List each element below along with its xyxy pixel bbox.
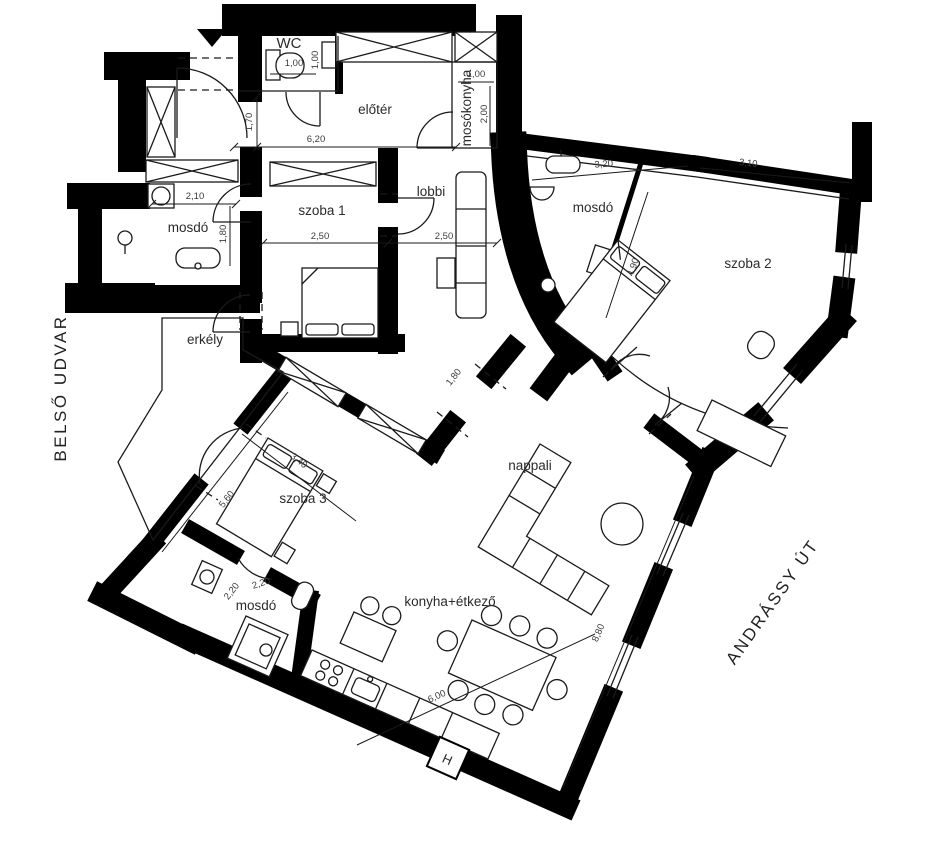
floorplan-page: H WC előtér mosókonyha mosdó szoba 1 lob…: [0, 0, 950, 860]
floorplan-drawing: H WC előtér mosókonyha mosdó szoba 1 lob…: [0, 0, 950, 860]
nappali-round-table: [601, 503, 643, 545]
room-label-konyha: konyha+étkező: [404, 594, 495, 609]
dim-wc-d: 1,00: [310, 51, 321, 70]
dim-eloter-d: 1,70: [244, 113, 255, 132]
dim-mosdo2-w: 3,20: [594, 158, 613, 171]
dim-nappali-e: 8,80: [590, 622, 607, 643]
dim-wc-w: 1,00: [285, 58, 304, 69]
dim-lobbi-opening: 1,80: [444, 367, 464, 388]
entrance-arrow-icon: [197, 29, 227, 47]
room-label-szoba1: szoba 1: [298, 203, 345, 218]
room-label-nappali: nappali: [508, 458, 552, 473]
room-label-mosdo2: mosdó: [573, 200, 614, 215]
room-label-szoba2: szoba 2: [724, 256, 771, 271]
dim-mosdo1-d: 1,80: [218, 225, 229, 244]
room-label-lobbi: lobbi: [417, 184, 446, 199]
kitchen-island: [340, 593, 404, 662]
szoba1-bed: [281, 268, 378, 338]
room-label-erkely: erkély: [187, 332, 223, 347]
room-label-szoba3: szoba 3: [279, 491, 326, 506]
street-label: ANDRÁSSY ÚT: [722, 536, 823, 668]
room-label-wc: WC: [277, 35, 302, 52]
dim-szoba1-b: 2,50: [435, 231, 454, 242]
dim-szoba1-a: 2,50: [311, 231, 330, 242]
room-label-mosokonyha: mosókonyha: [459, 69, 474, 146]
dim-mosdo3-b: 2,20: [251, 576, 272, 592]
courtyard-label: BELSŐ UDVAR: [51, 314, 70, 461]
dim-mosokonyha-d: 2,00: [479, 105, 490, 124]
dim-mosokonyha-w: 1,00: [467, 69, 486, 80]
dim-eloter-w: 6,20: [307, 134, 326, 145]
room-label-mosdo1: mosdó: [168, 220, 209, 235]
room-label-eloter: előtér: [358, 102, 392, 117]
room-label-mosdo3: mosdó: [236, 598, 277, 613]
dim-szoba2-w: 3,10: [738, 157, 758, 170]
dim-mosdo1-w: 2,10: [186, 191, 205, 202]
dim-konyha-l: 6,00: [426, 688, 447, 706]
